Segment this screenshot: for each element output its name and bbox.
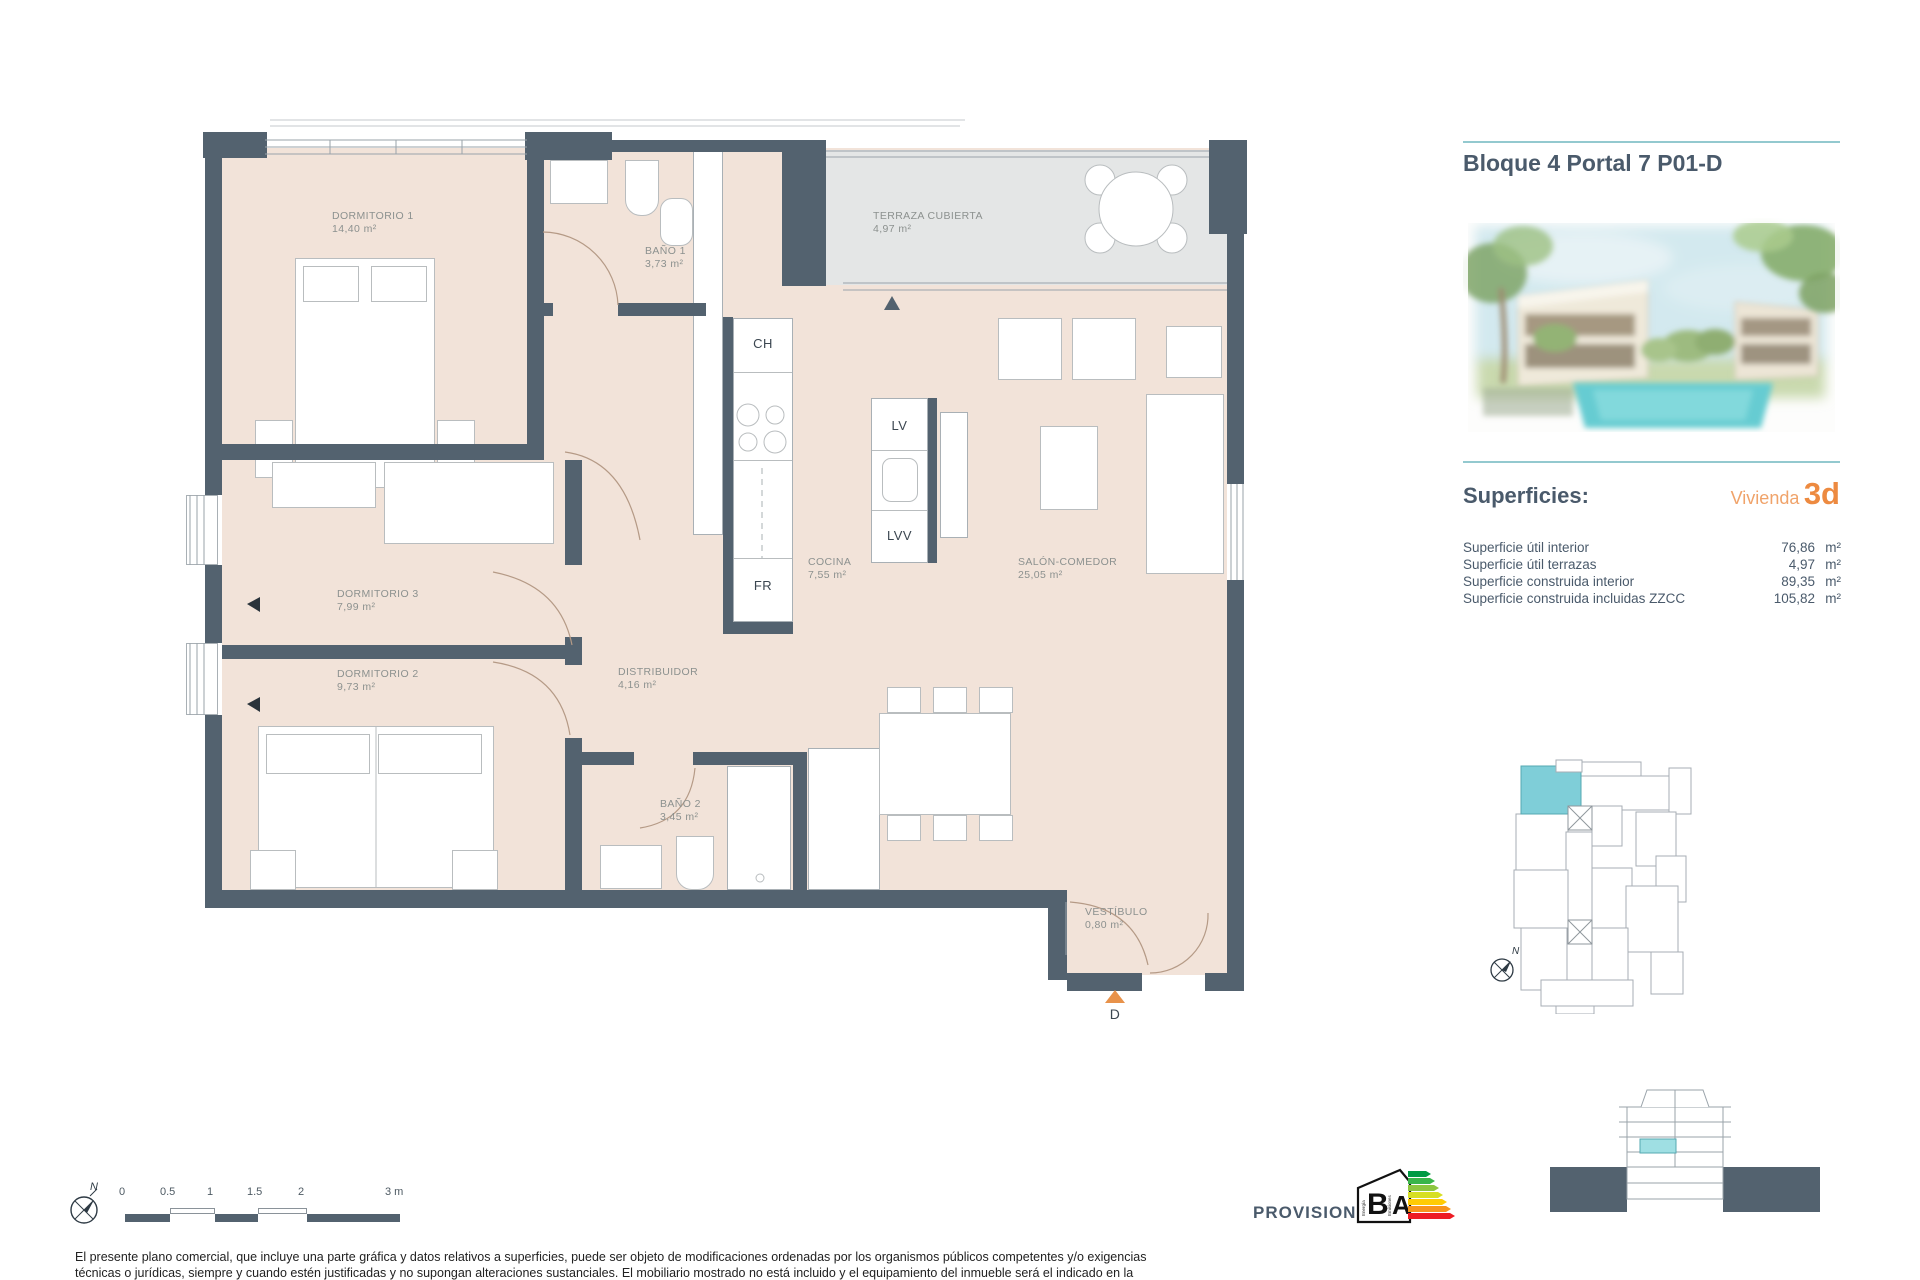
room-area: 7,55 m² [808,569,851,582]
vivienda-tag: Vivienda 3d [1731,481,1840,509]
room-area: 7,99 m² [337,601,419,614]
superficie-row: Superficie útil interior 76,86 m² [1463,539,1841,556]
scale-segment [170,1208,215,1214]
superficie-value: 76,86 [1760,539,1815,556]
room-label: TERRAZA CUBIERTA 4,97 m² [873,210,983,236]
plan-sheet: DORMITORIO 1 14,40 m² BAÑO 1 3,73 m² TER… [0,0,1920,1280]
room-label: DORMITORIO 2 9,73 m² [337,668,419,694]
superficie-row: Superficie útil terrazas 4,97 m² [1463,556,1841,573]
superficie-label: Superficie útil interior [1463,539,1760,556]
superficies-heading: Superficies: [1463,483,1589,509]
room-name: DISTRIBUIDOR [618,666,698,679]
room-area: 3,45 m² [660,811,701,824]
vivienda-code: 3d [1804,476,1840,511]
room-label: DORMITORIO 1 14,40 m² [332,210,414,236]
energy-energia-label: Energía [1361,1200,1366,1216]
superficie-unit: m² [1815,556,1841,573]
room-name: VESTÍBULO [1085,906,1148,919]
room-area: 14,40 m² [332,223,414,236]
key-plan-diagram: N [1486,748,1698,1014]
superficie-value: 4,97 [1760,556,1815,573]
energy-arrows [1408,1171,1455,1219]
room-name: TERRAZA CUBIERTA [873,210,983,223]
superficies-table: Superficie útil interior 76,86 m² Superf… [1463,539,1841,607]
key-plan-north-label: N [1512,946,1520,957]
energy-letter-b: B [1367,1188,1389,1221]
room-area: 0,80 m² [1085,919,1148,932]
superficie-unit: m² [1815,590,1841,607]
key-plan-compass: N [1491,946,1520,981]
room-label: SALÓN-COMEDOR 25,05 m² [1018,556,1117,582]
scale-tick: 0 [119,1186,125,1198]
room-label: DORMITORIO 3 7,99 m² [337,588,419,614]
room-label: COCINA 7,55 m² [808,556,851,582]
room-name: BAÑO 2 [660,798,701,811]
vivienda-label: Vivienda [1731,488,1800,508]
room-name: SALÓN-COMEDOR [1018,556,1117,569]
scale-segment [215,1214,258,1222]
room-name: COCINA [808,556,851,569]
door-direction-marker [884,296,900,310]
energy-rating-icon: B A Energía Emisiones [1350,1166,1458,1228]
page-title: Bloque 4 Portal 7 P01-D [1463,150,1722,177]
room-name: DORMITORIO 1 [332,210,414,223]
building-render-image [1463,218,1840,437]
room-name: DORMITORIO 2 [337,668,419,681]
scale-tick: 2 [298,1186,304,1198]
scale-bar: 0 0.5 1 1.5 2 3 m [95,1186,425,1232]
room-label: BAÑO 1 3,73 m² [645,245,686,271]
superficie-unit: m² [1815,573,1841,590]
divider-line-top [1463,141,1840,143]
scale-segment [258,1208,307,1214]
disclaimer-line2: técnicas o jurídicas, siempre y cuando e… [75,1265,1315,1280]
scale-segment [307,1214,400,1222]
room-area: 9,73 m² [337,681,419,694]
scale-tick: 1.5 [247,1186,262,1198]
superficie-row: Superficie construida incluidas ZZCC 105… [1463,590,1841,607]
highlighted-unit-elevation [1640,1139,1676,1153]
superficie-unit: m² [1815,539,1841,556]
divider-line-mid [1463,461,1840,463]
entry-arrow [1105,990,1125,1003]
superficie-value: 89,35 [1760,573,1815,590]
scale-tick: 3 m [385,1186,403,1198]
appliance-label-lv: LV [871,418,928,433]
disclaimer: El presente plano comercial, que incluye… [75,1249,1315,1280]
superficie-label: Superficie útil terrazas [1463,556,1760,573]
scale-segment [125,1214,170,1222]
appliance-label-fr: FR [733,578,793,593]
appliance-label-lvv: LVV [871,528,928,543]
view-arrow [247,697,260,712]
room-area: 25,05 m² [1018,569,1117,582]
room-label: BAÑO 2 3,45 m² [660,798,701,824]
superficie-label: Superficie construida interior [1463,573,1760,590]
energy-emisiones-label: Emisiones [1387,1194,1392,1216]
scale-tick: 1 [207,1186,213,1198]
room-area: 3,73 m² [645,258,686,271]
superficie-label: Superficie construida incluidas ZZCC [1463,590,1760,607]
room-area: 4,16 m² [618,679,698,692]
room-label: VESTÍBULO 0,80 m² [1085,906,1148,932]
elevation-diagram [1545,1082,1825,1217]
room-area: 4,97 m² [873,223,983,236]
appliance-label-ch: CH [733,336,793,351]
disclaimer-line1: El presente plano comercial, que incluye… [75,1249,1315,1265]
view-arrow [247,597,260,612]
superficies-header: Superficies: Vivienda 3d [1463,481,1840,509]
room-name: BAÑO 1 [645,245,686,258]
scale-tick: 0.5 [160,1186,175,1198]
room-label: DISTRIBUIDOR 4,16 m² [618,666,698,692]
room-name: DORMITORIO 3 [337,588,419,601]
superficie-value: 105,82 [1760,590,1815,607]
entry-label: D [1100,1006,1130,1022]
superficie-row: Superficie construida interior 89,35 m² [1463,573,1841,590]
